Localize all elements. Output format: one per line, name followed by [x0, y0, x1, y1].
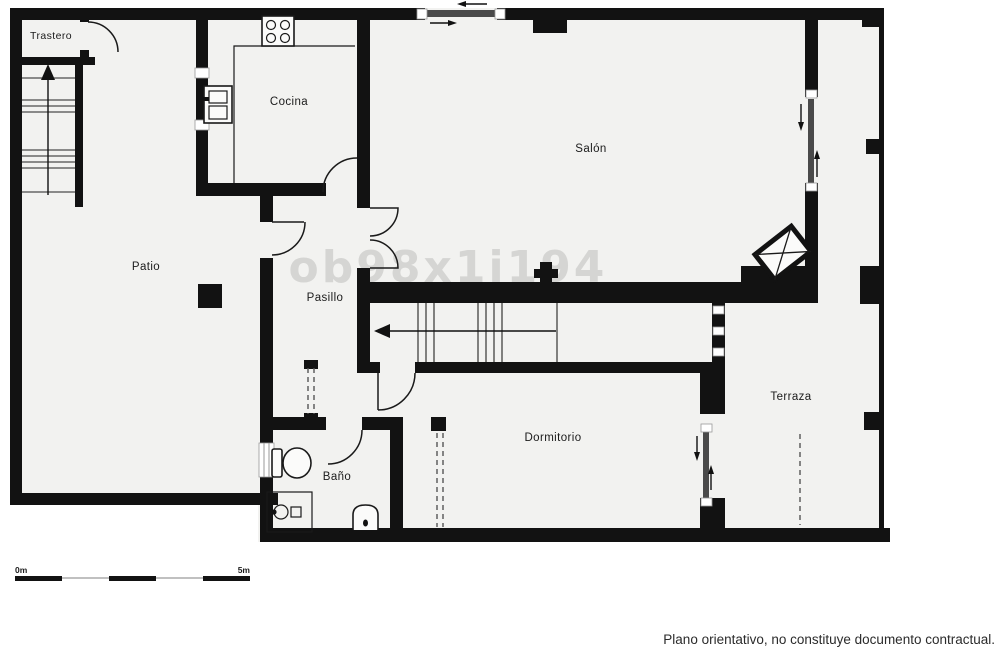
scale-end-label: 5m	[238, 565, 251, 575]
fridge-icon	[200, 86, 232, 123]
toilet-icon	[272, 448, 311, 478]
room-label-trastero: Trastero	[30, 30, 72, 42]
room-label-salon: Salón	[575, 143, 606, 155]
room-label-terraza: Terraza	[770, 391, 811, 403]
room-label-patio: Patio	[132, 261, 160, 273]
column-right-3	[864, 412, 882, 430]
room-label-cocina: Cocina	[270, 96, 308, 108]
stove-icon	[262, 16, 294, 46]
disclaimer-text: Plano orientativo, no constituye documen…	[663, 632, 995, 647]
column-right-1	[866, 139, 881, 154]
column-salon-top	[533, 20, 567, 33]
bidet-icon	[353, 505, 378, 530]
column-patio	[198, 284, 222, 308]
room-label-bano: Baño	[323, 471, 351, 483]
floor-plan-canvas: ob98x1i194	[0, 0, 1000, 656]
room-label-dormitorio: Dormitorio	[524, 432, 581, 444]
window-cocina-1	[195, 68, 209, 78]
scale-start-label: 0m	[15, 565, 28, 575]
column-right-2	[860, 266, 882, 304]
wall-terraza-left-upper	[700, 362, 725, 414]
room-label-pasillo: Pasillo	[307, 292, 344, 304]
column-top-right	[862, 8, 884, 27]
window-terraza-left	[713, 306, 724, 356]
floor-plan-page: ob98x1i194	[0, 0, 1000, 656]
